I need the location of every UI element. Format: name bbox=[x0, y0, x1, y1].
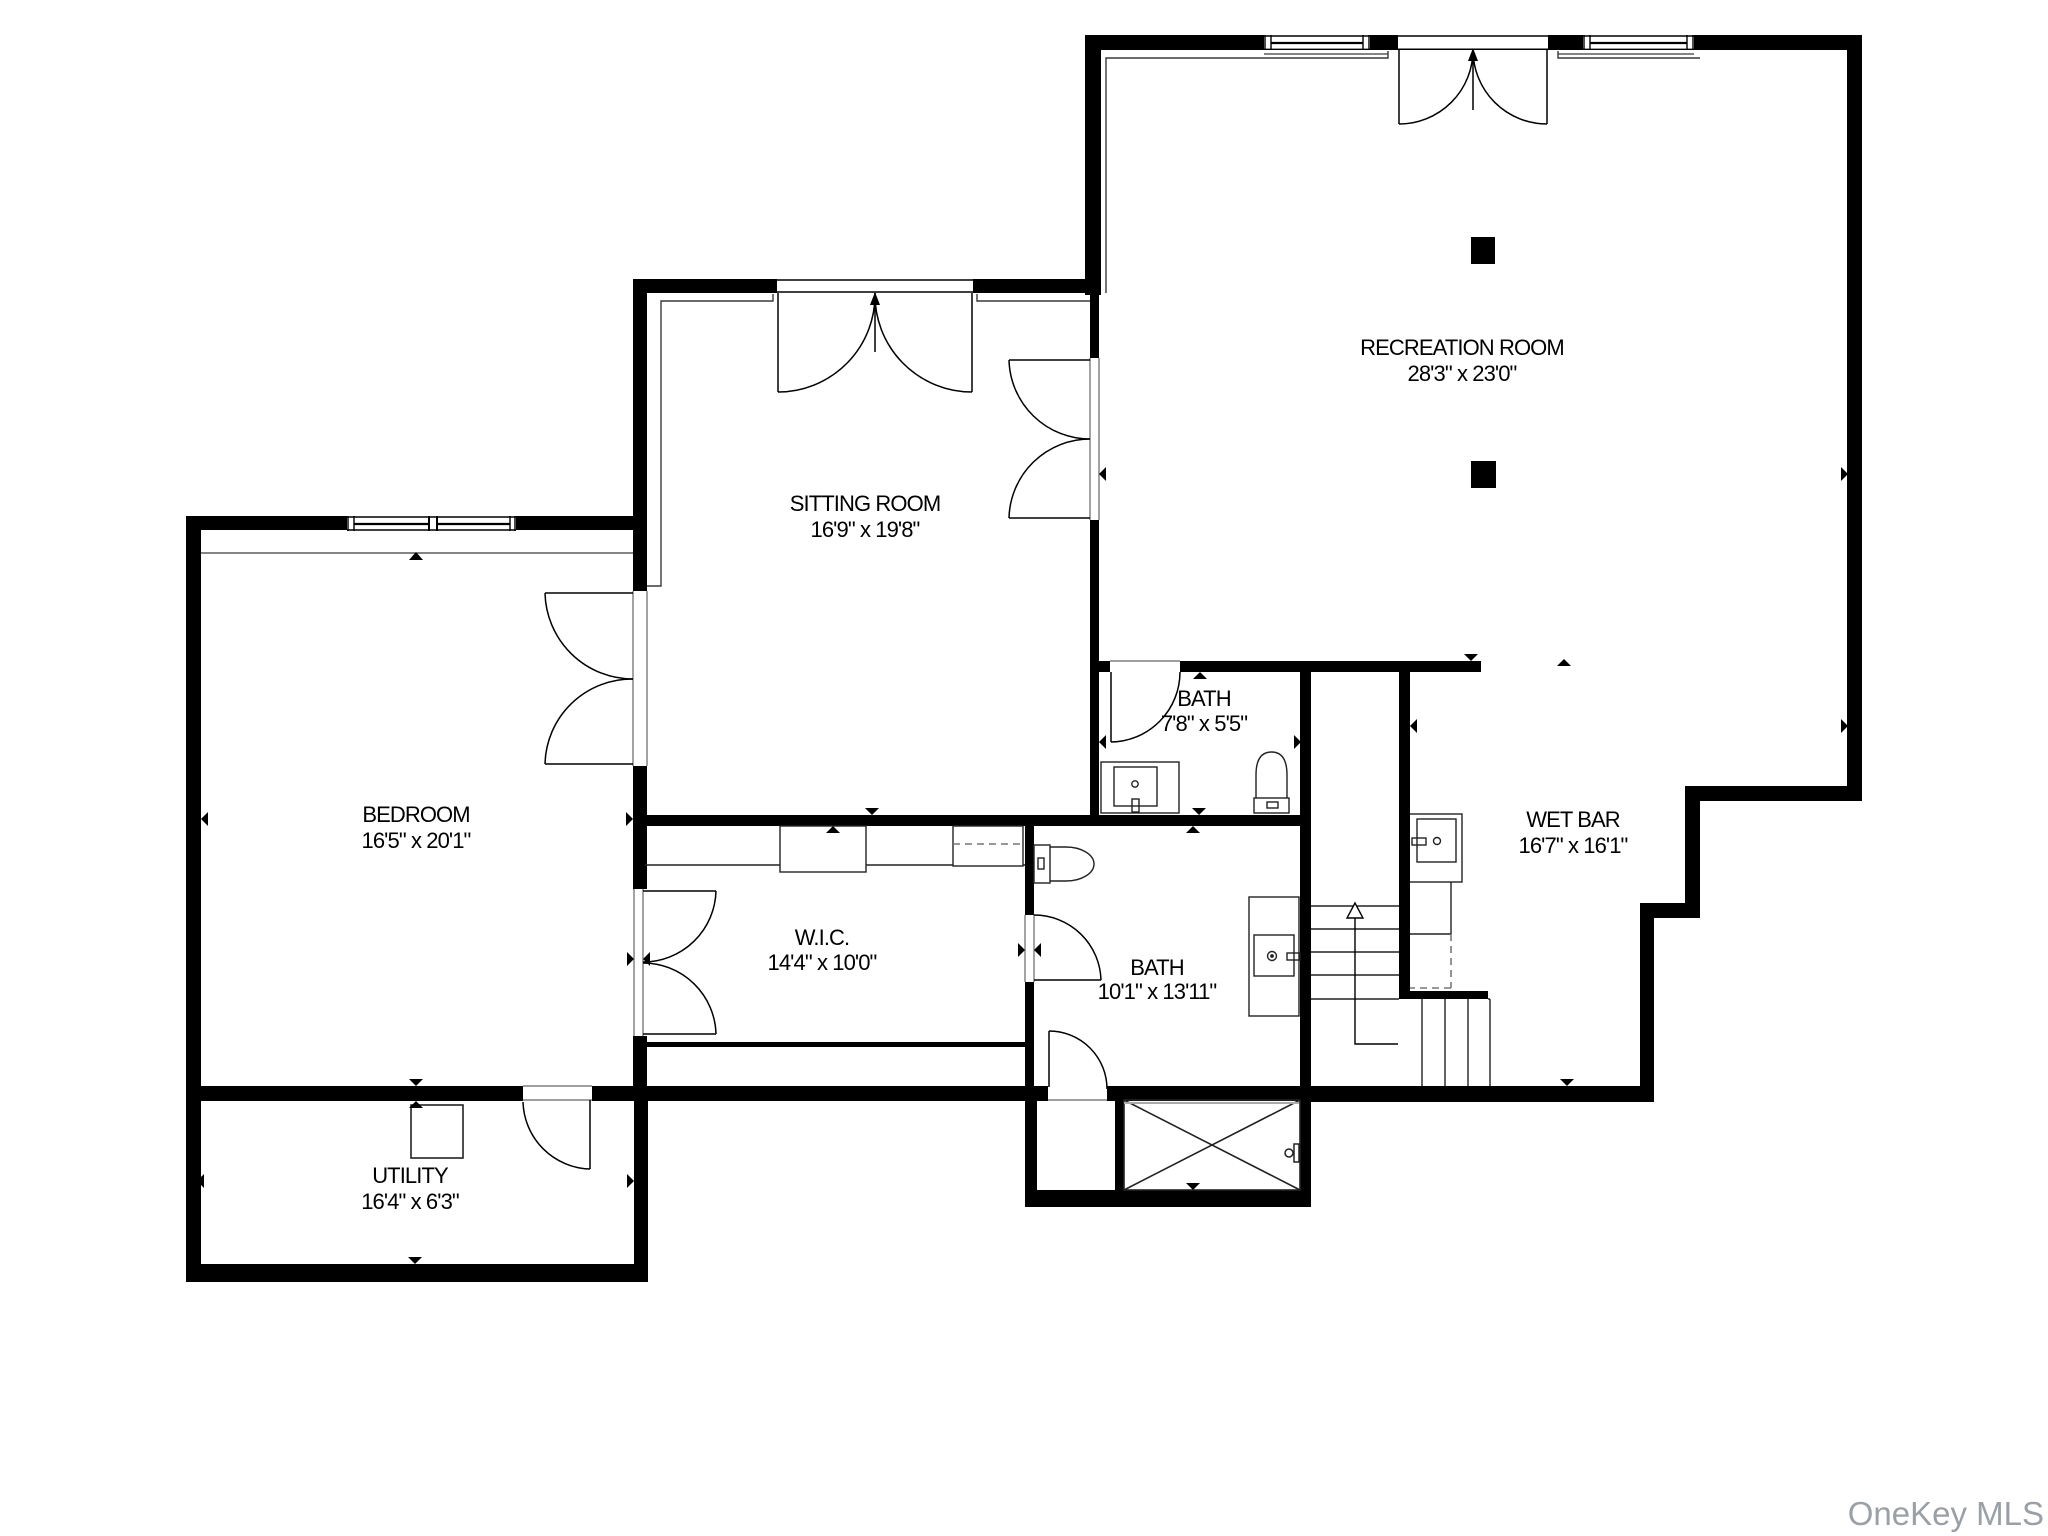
svg-text:WET BAR: WET BAR bbox=[1526, 807, 1620, 832]
svg-text:BATH: BATH bbox=[1130, 955, 1183, 980]
svg-text:BEDROOM: BEDROOM bbox=[362, 802, 469, 827]
svg-text:OneKey MLS: OneKey MLS bbox=[1848, 1495, 2044, 1532]
svg-text:28'3" x 23'0": 28'3" x 23'0" bbox=[1408, 361, 1517, 386]
svg-text:16'5" x 20'1": 16'5" x 20'1" bbox=[362, 828, 471, 853]
svg-text:SITTING ROOM: SITTING ROOM bbox=[790, 491, 941, 516]
svg-text:16'9" x 19'8": 16'9" x 19'8" bbox=[811, 517, 920, 542]
svg-text:16'7" x 16'1": 16'7" x 16'1" bbox=[1519, 833, 1628, 858]
svg-text:10'1" x 13'11": 10'1" x 13'11" bbox=[1098, 979, 1217, 1004]
svg-text:16'4" x 6'3": 16'4" x 6'3" bbox=[361, 1189, 459, 1214]
svg-text:UTILITY: UTILITY bbox=[372, 1163, 449, 1188]
svg-text:7'8" x 5'5": 7'8" x 5'5" bbox=[1161, 711, 1247, 736]
svg-text:14'4" x 10'0": 14'4" x 10'0" bbox=[768, 950, 877, 975]
svg-text:BATH: BATH bbox=[1177, 686, 1230, 711]
svg-text:RECREATION ROOM: RECREATION ROOM bbox=[1360, 335, 1564, 360]
svg-text:W.I.C.: W.I.C. bbox=[795, 925, 850, 950]
